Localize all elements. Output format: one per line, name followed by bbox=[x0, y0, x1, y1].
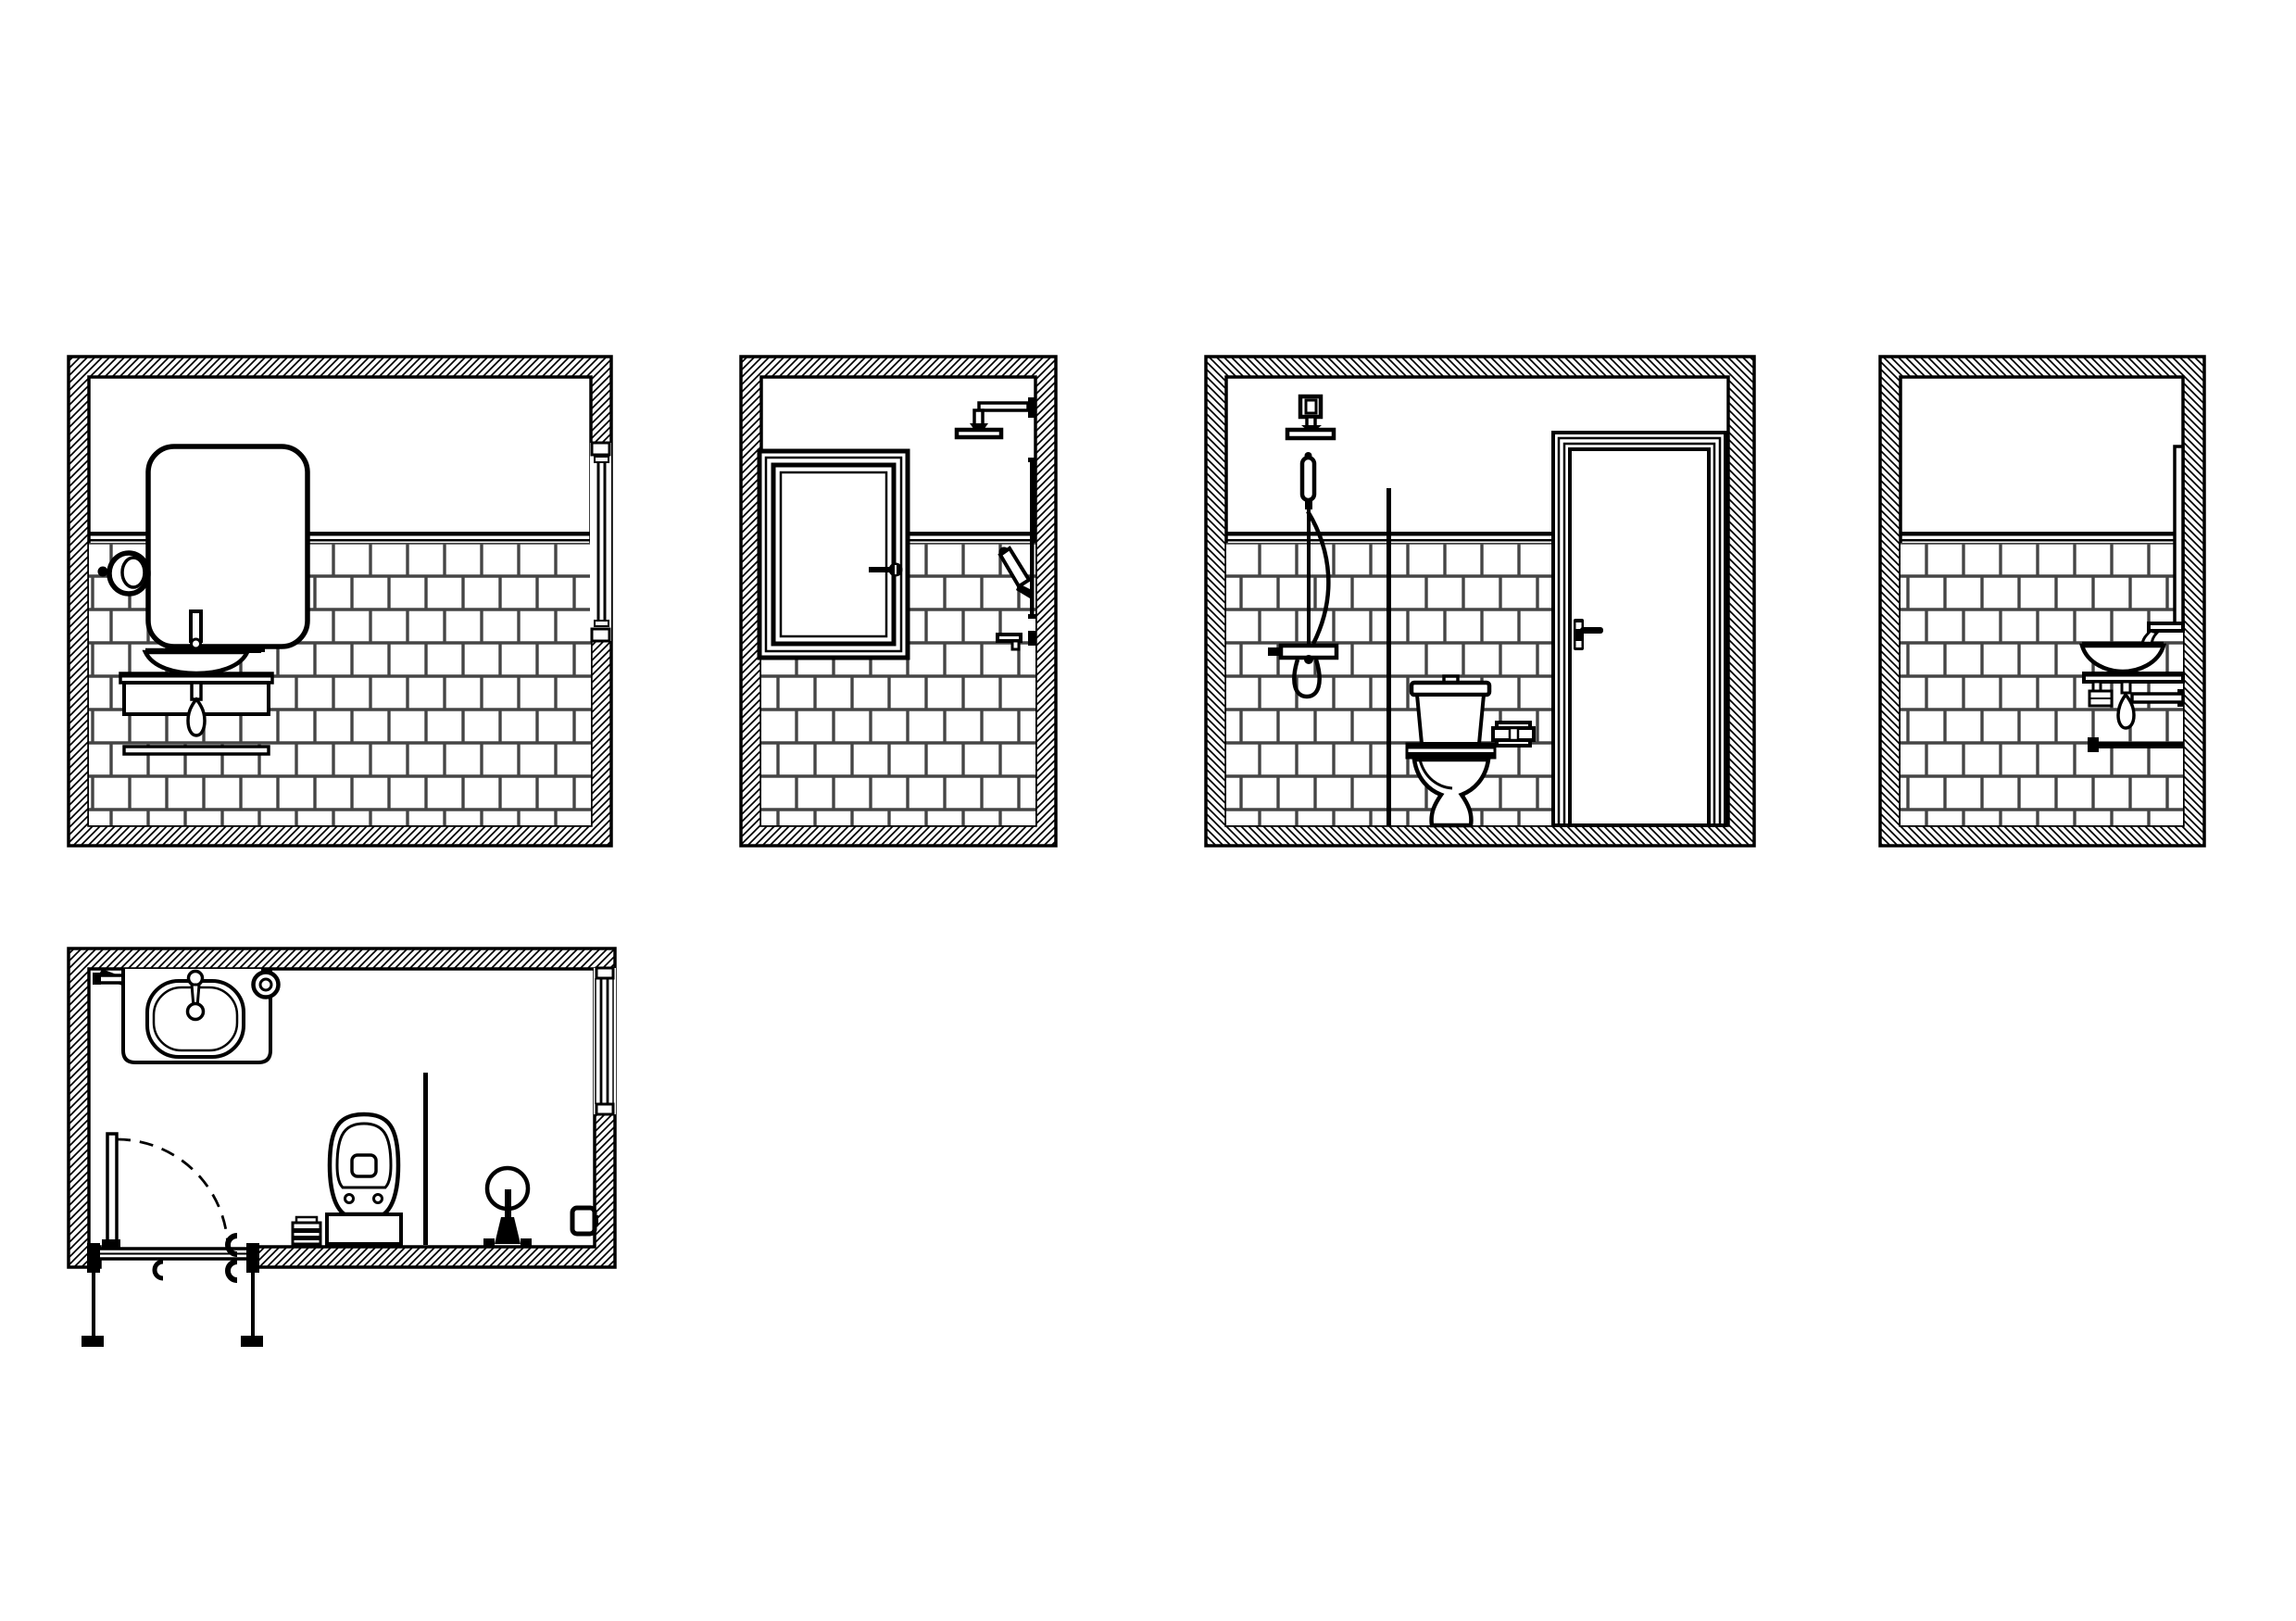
panel-window-shower-elevation bbox=[741, 357, 1056, 846]
tile-wainscot bbox=[1901, 543, 2183, 825]
towel-rail bbox=[124, 747, 269, 754]
drain-trap bbox=[2118, 682, 2134, 728]
casement-window bbox=[759, 451, 908, 658]
mirror-edge-strip bbox=[2175, 446, 2183, 624]
hinged-door-leaf bbox=[102, 1134, 120, 1249]
panel-floor-plan bbox=[69, 949, 616, 1347]
drawing-canvas bbox=[0, 0, 2296, 1621]
side-wall-window-section bbox=[590, 443, 611, 641]
drain-trap bbox=[188, 683, 205, 735]
roller bbox=[155, 1262, 163, 1278]
sliding-track-assembly bbox=[82, 1236, 263, 1347]
panel-basin-corner-elevation bbox=[1880, 357, 2204, 846]
basin-faucet bbox=[191, 611, 201, 648]
floor-sprayer-stand bbox=[483, 1168, 532, 1247]
door-swing-arc bbox=[117, 1139, 228, 1250]
door-with-frame bbox=[1553, 433, 1725, 825]
roller bbox=[228, 1236, 237, 1254]
glass-partition bbox=[1386, 488, 1391, 825]
striped-step-box bbox=[293, 1217, 320, 1244]
tile-border-line bbox=[908, 532, 1035, 536]
panel-vanity-elevation bbox=[69, 357, 611, 846]
toilet-plan bbox=[327, 1114, 401, 1244]
tall-wall-mirror bbox=[148, 446, 307, 647]
side-wall-window-section bbox=[594, 968, 616, 1114]
roller bbox=[228, 1262, 237, 1280]
toilet-paper-holder bbox=[1493, 723, 1534, 746]
glass-partition bbox=[423, 1073, 428, 1245]
vanity-counter bbox=[123, 969, 270, 1062]
bathroom-cad-drawing bbox=[0, 0, 2296, 1621]
tile-border-line bbox=[1901, 532, 2183, 536]
rain-shower-arm bbox=[957, 397, 1035, 437]
shower-head bbox=[957, 430, 1001, 437]
ceiling-shower-head bbox=[1287, 396, 1334, 438]
panel-toilet-door-elevation bbox=[1206, 357, 1754, 846]
wall-outlet bbox=[572, 1208, 598, 1234]
